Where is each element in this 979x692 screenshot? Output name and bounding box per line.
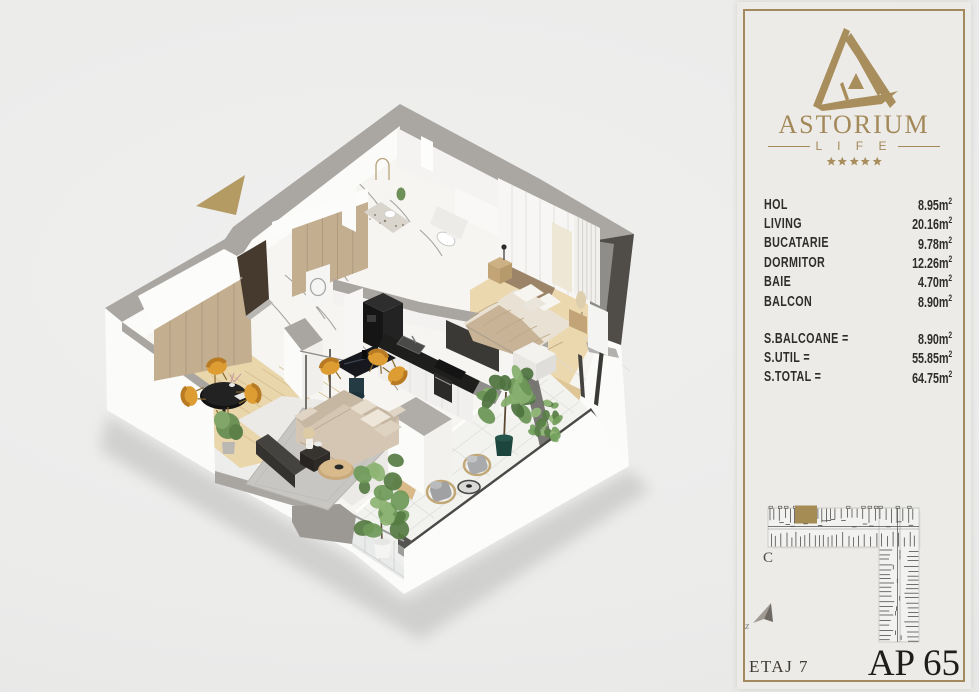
svg-text:z: z xyxy=(744,620,750,632)
